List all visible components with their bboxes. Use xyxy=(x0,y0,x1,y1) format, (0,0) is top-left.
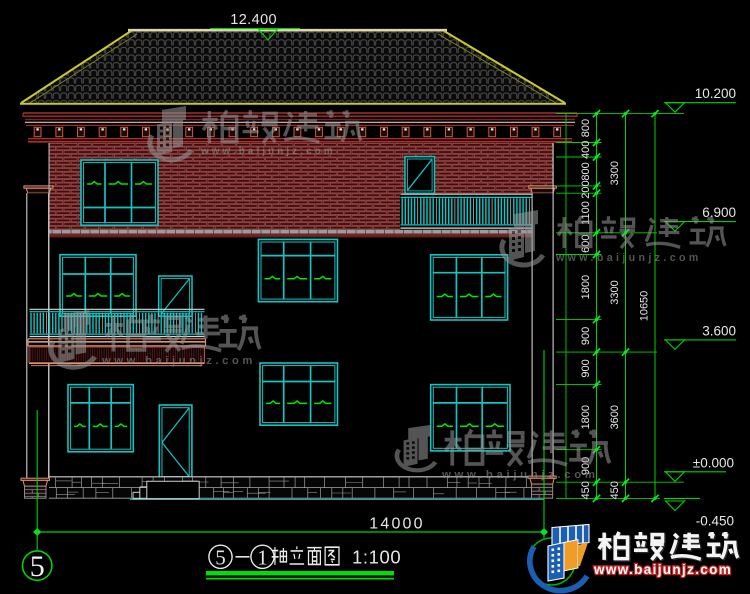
svg-text:900: 900 xyxy=(580,327,592,345)
svg-text:1800: 1800 xyxy=(580,405,592,429)
svg-text:450: 450 xyxy=(580,481,592,499)
svg-text:12.400: 12.400 xyxy=(230,12,277,28)
svg-text:900: 900 xyxy=(580,359,592,377)
svg-text:3600: 3600 xyxy=(609,405,621,429)
svg-text:6.900: 6.900 xyxy=(702,205,736,220)
svg-text:10.200: 10.200 xyxy=(695,86,736,101)
svg-text:14000: 14000 xyxy=(369,516,425,533)
svg-text:5: 5 xyxy=(30,550,45,583)
svg-text:www.baijunjz.com: www.baijunjz.com xyxy=(441,469,599,481)
svg-text:800: 800 xyxy=(580,162,592,180)
svg-text:5: 5 xyxy=(215,545,226,569)
svg-text:3300: 3300 xyxy=(609,161,621,185)
svg-text:±0.000: ±0.000 xyxy=(693,455,734,470)
svg-text:www.baijunjz.com: www.baijunjz.com xyxy=(593,562,732,577)
svg-text:-0.450: -0.450 xyxy=(696,514,734,529)
svg-text:1: 1 xyxy=(257,545,268,569)
svg-text:3300: 3300 xyxy=(609,280,621,304)
svg-text:400: 400 xyxy=(580,141,592,159)
svg-text:1800: 1800 xyxy=(580,275,592,299)
svg-text:10650: 10650 xyxy=(639,291,651,322)
svg-text:www.baijunjz.com: www.baijunjz.com xyxy=(101,355,256,367)
svg-text:www.baijunjz.com: www.baijunjz.com xyxy=(200,146,336,157)
svg-text:200: 200 xyxy=(580,180,592,198)
svg-text:450: 450 xyxy=(609,481,621,499)
svg-text:3.600: 3.600 xyxy=(702,323,736,338)
svg-text:1:100: 1:100 xyxy=(352,547,401,568)
svg-text:www.baijunjz.com: www.baijunjz.com xyxy=(555,252,702,264)
svg-text:800: 800 xyxy=(580,119,592,137)
